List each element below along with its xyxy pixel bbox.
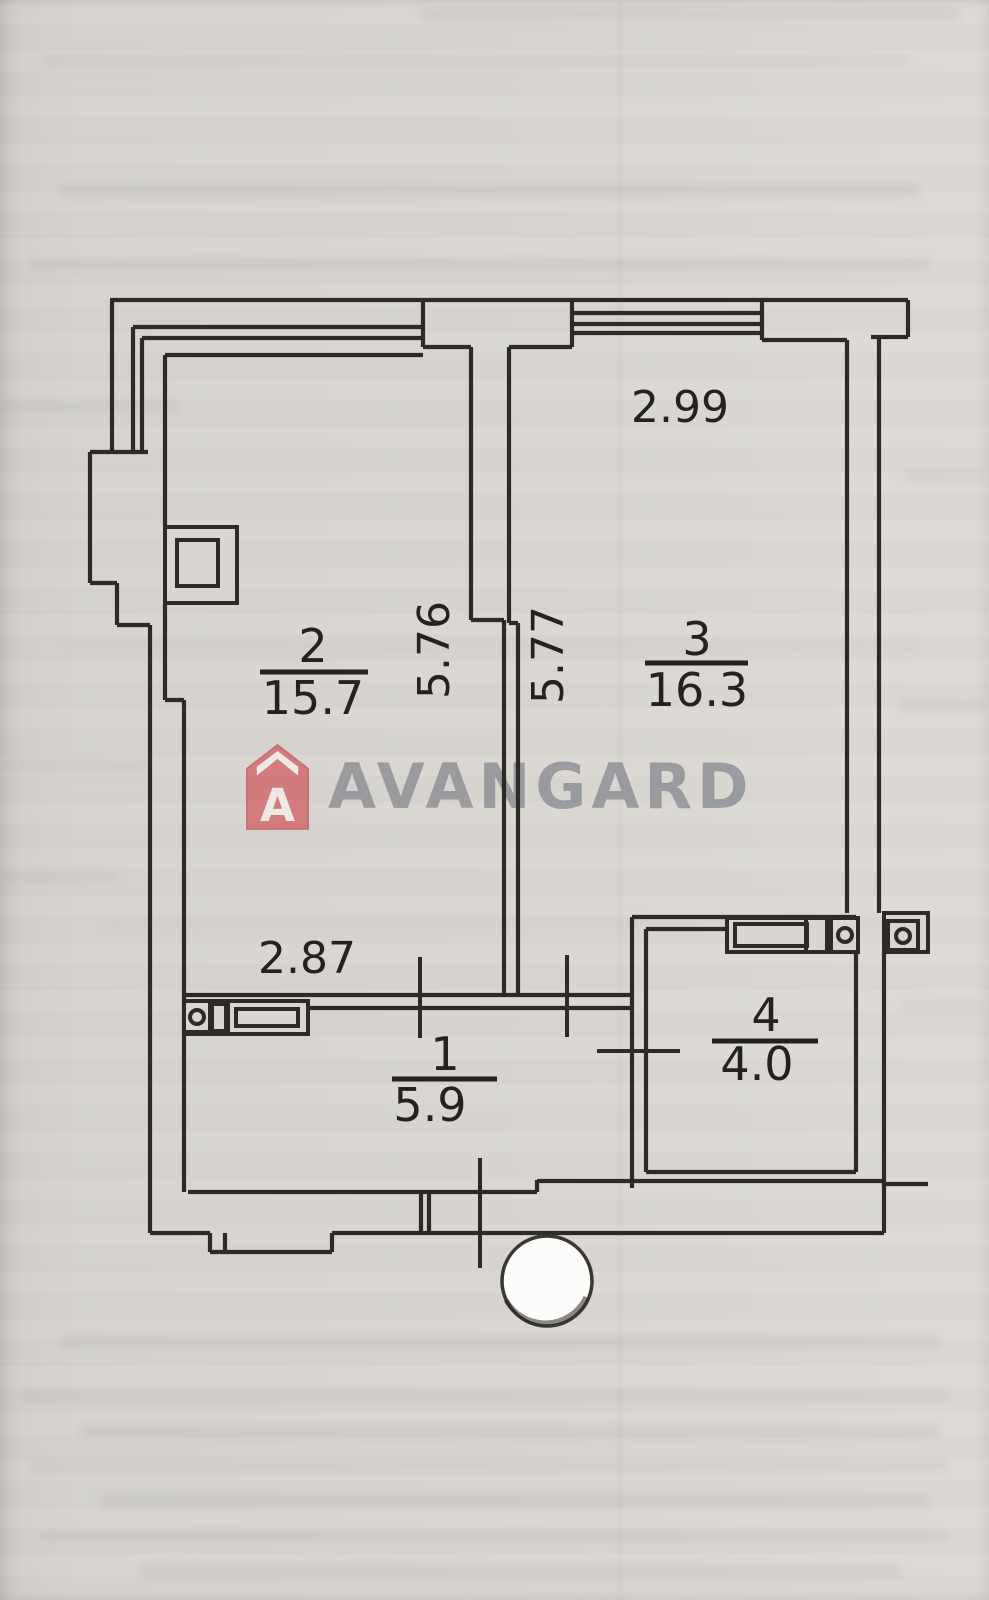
vent-unit-symbol-right bbox=[884, 913, 928, 952]
dimension-room2-depth-label: 5.76 bbox=[409, 601, 460, 699]
room1-area-label: 5.9 bbox=[393, 1078, 466, 1132]
room4-number-label: 4 bbox=[751, 988, 780, 1042]
vent-unit-symbol-bath bbox=[727, 918, 858, 952]
room3-area-label: 16.3 bbox=[646, 663, 748, 717]
floor-plan-scan: A AVANGARD bbox=[0, 0, 989, 1600]
room-label-fraction-lines bbox=[260, 663, 818, 1079]
walls-outline bbox=[90, 300, 928, 1252]
vent-shaft-symbol bbox=[165, 527, 237, 603]
dimension-room3-width-label: 2.99 bbox=[631, 382, 729, 433]
dimension-room2-lower-width-label: 2.87 bbox=[258, 933, 356, 984]
room2-number-label: 2 bbox=[298, 619, 327, 673]
dimension-room3-depth-label: 5.77 bbox=[523, 606, 574, 704]
room4-area-label: 4.0 bbox=[720, 1037, 793, 1091]
floor-plan-drawing: 2.99 5.76 5.77 2.87 2 15.7 3 16.3 1 5.9 … bbox=[0, 0, 989, 1600]
room3-number-label: 3 bbox=[682, 612, 711, 666]
door-unit-symbol-hall bbox=[184, 1001, 308, 1034]
room2-area-label: 15.7 bbox=[262, 671, 364, 725]
room1-number-label: 1 bbox=[430, 1027, 459, 1081]
